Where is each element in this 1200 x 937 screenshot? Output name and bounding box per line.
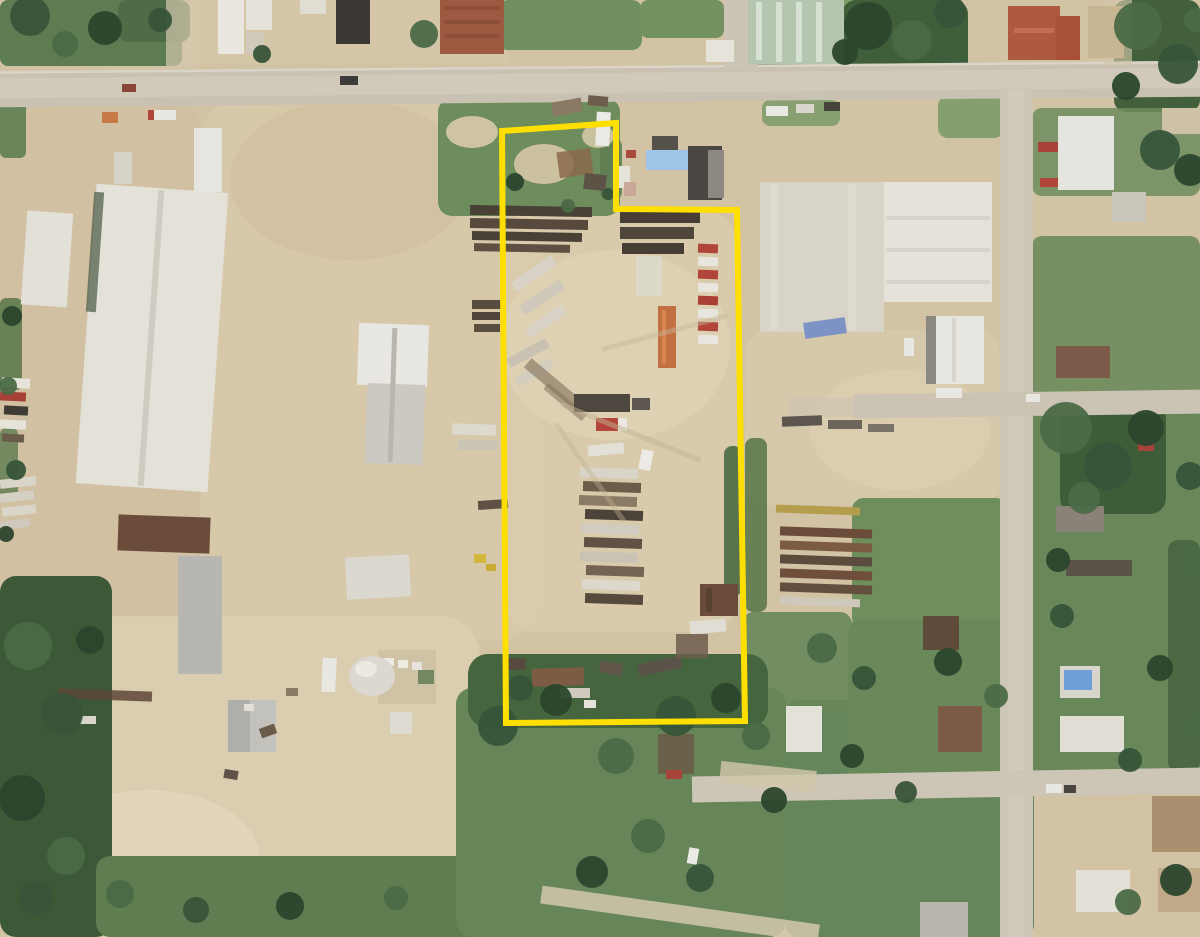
- building-tall-shed: [194, 128, 222, 192]
- yard-object: [1040, 178, 1058, 187]
- vegetation-patch: [498, 0, 642, 50]
- building-shed-top: [218, 0, 244, 54]
- tree: [507, 675, 533, 701]
- round-tank: [349, 656, 395, 696]
- yard-object: [474, 243, 570, 253]
- yard-object: [452, 423, 496, 436]
- tree: [384, 886, 408, 910]
- building: [1060, 716, 1124, 752]
- building: [923, 616, 959, 650]
- building: [1162, 108, 1200, 134]
- yard-object: [390, 712, 412, 734]
- tree: [1084, 442, 1132, 490]
- yard-object: [766, 106, 788, 116]
- building: [1056, 16, 1080, 60]
- building: [444, 6, 500, 10]
- building: [886, 280, 990, 284]
- aerial-map-canvas: [0, 0, 1200, 937]
- yard-object: [472, 312, 500, 320]
- building: [1014, 28, 1054, 33]
- yard-object: [321, 658, 337, 693]
- yard-object: [574, 394, 630, 412]
- parked-truck: [698, 244, 718, 254]
- tree: [1118, 748, 1142, 772]
- building: [708, 150, 724, 198]
- building: [886, 248, 990, 252]
- tree: [852, 666, 876, 690]
- tree: [1128, 410, 1164, 446]
- building: [1152, 796, 1200, 852]
- building: [920, 902, 968, 937]
- yard-object: [486, 564, 496, 571]
- yard-object: [122, 84, 136, 92]
- building: [1066, 560, 1132, 576]
- yard-object: [2, 433, 24, 442]
- yard-object: [102, 112, 118, 123]
- yard-object: [586, 565, 644, 577]
- yard-object: [698, 270, 718, 280]
- yard-object: [706, 588, 712, 612]
- building-industrial-right-west: [760, 182, 884, 332]
- building: [848, 184, 856, 330]
- yard-object: [868, 424, 894, 432]
- building-white-trailer: [345, 554, 411, 599]
- yard-object: [676, 634, 708, 658]
- yard-object: [584, 700, 596, 708]
- building-left-edge: [21, 211, 73, 308]
- yard-object: [1064, 785, 1076, 793]
- yard-object: [581, 523, 639, 535]
- yard-object: [666, 770, 682, 779]
- building-blue-roof: [646, 150, 688, 170]
- yard-object: [1046, 784, 1062, 793]
- building: [926, 316, 936, 384]
- yard-object: [244, 704, 254, 711]
- tree: [742, 722, 770, 750]
- building: [300, 0, 326, 14]
- yard-object: [782, 415, 822, 426]
- tree: [561, 199, 575, 213]
- yard-object: [936, 388, 962, 398]
- tree: [984, 684, 1008, 708]
- tree: [276, 892, 304, 920]
- yard-object: [796, 104, 814, 113]
- building-white-right: [1058, 116, 1114, 190]
- tree: [4, 622, 52, 670]
- yard-object: [588, 95, 609, 107]
- tree: [761, 787, 787, 813]
- vegetation-patch: [852, 498, 1008, 630]
- yard-object: [532, 667, 585, 687]
- yard-object: [1026, 394, 1040, 402]
- tree: [88, 11, 122, 45]
- building: [770, 184, 778, 330]
- building: [365, 383, 426, 465]
- tree: [540, 684, 572, 716]
- tree: [410, 20, 438, 48]
- yard-object: [622, 243, 684, 254]
- yellow-machine: [474, 554, 486, 563]
- yard-object: [472, 300, 502, 309]
- building: [786, 706, 822, 752]
- yard-object: [412, 662, 422, 670]
- building: [246, 0, 272, 30]
- yard-object: [632, 398, 650, 410]
- building: [444, 34, 500, 38]
- tree: [892, 20, 932, 60]
- tree: [602, 188, 614, 200]
- tree: [478, 706, 518, 746]
- road-stub-top-left: [166, 0, 196, 68]
- tree: [631, 819, 665, 853]
- yard-object: [828, 420, 862, 429]
- yard-object: [824, 102, 840, 111]
- building: [114, 152, 132, 184]
- tree: [183, 897, 209, 923]
- building: [886, 216, 990, 220]
- tree: [1112, 72, 1140, 100]
- yard-object: [472, 231, 582, 242]
- tree: [1158, 44, 1198, 84]
- vegetation-patch: [640, 0, 724, 38]
- yard-object: [148, 110, 154, 120]
- building: [706, 40, 734, 62]
- road: [788, 398, 858, 417]
- building-brown-trailer: [117, 514, 210, 553]
- yard-object: [626, 150, 636, 158]
- tree: [19, 881, 53, 915]
- yard-object: [698, 296, 718, 306]
- tree: [656, 696, 696, 736]
- tree: [106, 880, 134, 908]
- yard-object: [508, 658, 526, 670]
- yard-object: [286, 688, 298, 696]
- building-dark-top: [336, 0, 370, 44]
- yard-object: [355, 661, 377, 677]
- tree: [6, 460, 26, 480]
- yard-object: [904, 338, 914, 356]
- building-blue-tarp-roof: [1064, 670, 1092, 690]
- tree: [506, 173, 524, 191]
- building: [796, 2, 802, 62]
- tree: [1160, 864, 1192, 896]
- yard-object: [698, 335, 718, 345]
- yard-object: [584, 537, 642, 549]
- yard-object: [658, 734, 694, 774]
- yard-object: [583, 481, 641, 493]
- tree: [1046, 548, 1070, 572]
- tree: [76, 626, 104, 654]
- tree: [1140, 130, 1180, 170]
- tree: [807, 633, 837, 663]
- tree: [895, 781, 917, 803]
- building-brown-house-2: [938, 706, 982, 752]
- yard-object: [0, 419, 26, 429]
- yard-object: [698, 257, 718, 267]
- building: [816, 2, 822, 62]
- tree: [1068, 482, 1100, 514]
- tree: [253, 45, 271, 63]
- building: [652, 136, 678, 150]
- tree: [934, 648, 962, 676]
- road: [1008, 90, 1024, 937]
- yard-object: [418, 670, 434, 684]
- yard-object: [398, 660, 408, 668]
- building: [1112, 192, 1146, 222]
- yard-object: [662, 310, 666, 364]
- tree: [47, 837, 85, 875]
- rusty-containers: [700, 584, 738, 616]
- building-gray-shed-tall: [178, 556, 222, 674]
- yard-object: [595, 112, 611, 147]
- tree: [1114, 2, 1162, 50]
- tree: [41, 693, 83, 735]
- yard-object: [636, 256, 662, 296]
- ground-patch: [810, 370, 990, 490]
- tree: [576, 856, 608, 888]
- tree: [711, 683, 741, 713]
- orange-pipe-rack: [658, 306, 676, 368]
- tree: [686, 864, 714, 892]
- tree: [52, 31, 78, 57]
- building: [776, 2, 782, 62]
- vegetation-patch: [938, 96, 1004, 138]
- tree: [832, 39, 858, 65]
- tree: [2, 306, 22, 326]
- yard-object: [458, 440, 498, 451]
- building-brown-house: [1056, 346, 1110, 378]
- yard-object: [620, 227, 694, 239]
- tree: [1040, 402, 1092, 454]
- yard-object: [446, 116, 498, 148]
- yard-object: [474, 324, 500, 332]
- aerial-satellite-image: [0, 0, 1200, 937]
- building: [756, 2, 762, 60]
- yard-object: [580, 551, 638, 563]
- tree: [1050, 604, 1074, 628]
- tree: [0, 775, 45, 821]
- car-on-road: [340, 76, 358, 85]
- yard-object: [583, 173, 607, 191]
- tree: [1147, 655, 1173, 681]
- ground-patch: [230, 100, 470, 260]
- tree: [1115, 889, 1141, 915]
- yard-object: [582, 579, 640, 591]
- yard-object: [698, 283, 718, 293]
- vegetation-patch: [745, 438, 767, 612]
- yard-object: [4, 405, 28, 415]
- tree: [598, 738, 634, 774]
- yard-object: [585, 593, 643, 605]
- tree: [840, 744, 864, 768]
- building: [952, 318, 956, 382]
- yard-object: [470, 218, 588, 230]
- tree: [148, 8, 172, 32]
- building: [624, 182, 636, 196]
- building: [444, 20, 500, 24]
- yard-object: [1038, 142, 1058, 152]
